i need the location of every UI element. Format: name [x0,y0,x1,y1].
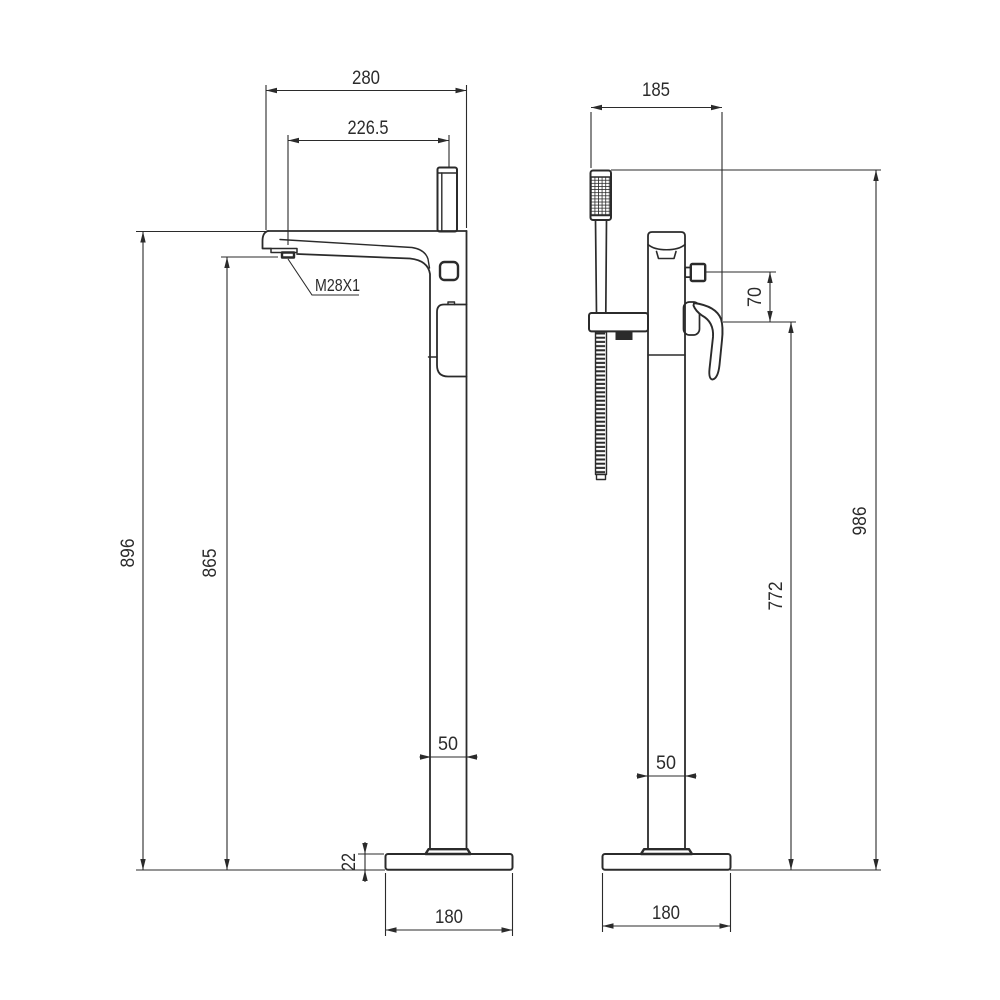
dim-height-body: 896 [117,232,268,871]
dim-height-overall: 986 [611,170,881,870]
dim-spout-reach: 226.5 [288,117,449,245]
dim-height-outlet: 865 [199,257,278,870]
dim-base-thickness-label: 22 [338,853,360,871]
front-view [263,168,513,870]
side-cap-underside [648,245,685,250]
dim-base-width-front: 180 [386,873,513,936]
outlet-thread-label: M28X1 [315,275,360,295]
dim-base-width-side-label: 180 [652,902,680,924]
dim-spout-reach-label: 226.5 [348,117,389,139]
side-mixer-lever [684,302,723,380]
technical-drawing-canvas: 280 226.5 896 865 50 [0,0,1000,1000]
dim-height-overall-label: 986 [849,507,871,536]
side-dimensions: 185 70 772 986 50 [591,79,881,932]
dim-base-width-front-label: 180 [435,906,463,928]
side-base-plate [603,854,731,870]
shower-handle [596,220,607,313]
side-hand-shower [591,171,612,314]
dim-spout-width: 280 [266,67,467,230]
dim-spout-width-label: 280 [352,67,380,89]
side-shower-hose [596,332,607,480]
dim-diverter-offset-label: 70 [744,287,766,307]
front-base-plate [386,854,513,870]
side-diverter-knob [685,264,705,281]
front-outlet-button [440,262,458,280]
front-spout-underside [297,254,430,849]
front-valve-panel [437,305,467,377]
dim-height-outlet-label: 865 [199,548,221,577]
dim-column-width-side-label: 50 [656,752,676,774]
front-handle-stick [438,168,458,232]
dim-column-width-front-label: 50 [438,733,458,755]
dim-base-width-side: 180 [603,873,731,932]
dim-base-thickness: 22 [338,842,384,882]
dim-height-lever-label: 772 [765,582,787,611]
dim-height-lever: 772 [723,322,796,870]
dim-depth-label: 185 [642,79,670,101]
drawing-page: 280 226.5 896 865 50 [0,0,1000,1000]
outlet-thread-callout: M28X1 [288,259,360,295]
side-spout-cup [657,252,677,259]
front-dimensions: 280 226.5 896 865 50 [117,67,513,936]
front-aerator-nut [282,253,294,258]
dim-column-width-front: 50 [420,733,478,757]
dim-column-width-side: 50 [637,752,697,776]
front-spout-left-curve [263,231,272,249]
side-shower-bracket [589,313,648,331]
side-hose-clamp [616,332,633,341]
dim-height-body-label: 896 [117,539,139,568]
